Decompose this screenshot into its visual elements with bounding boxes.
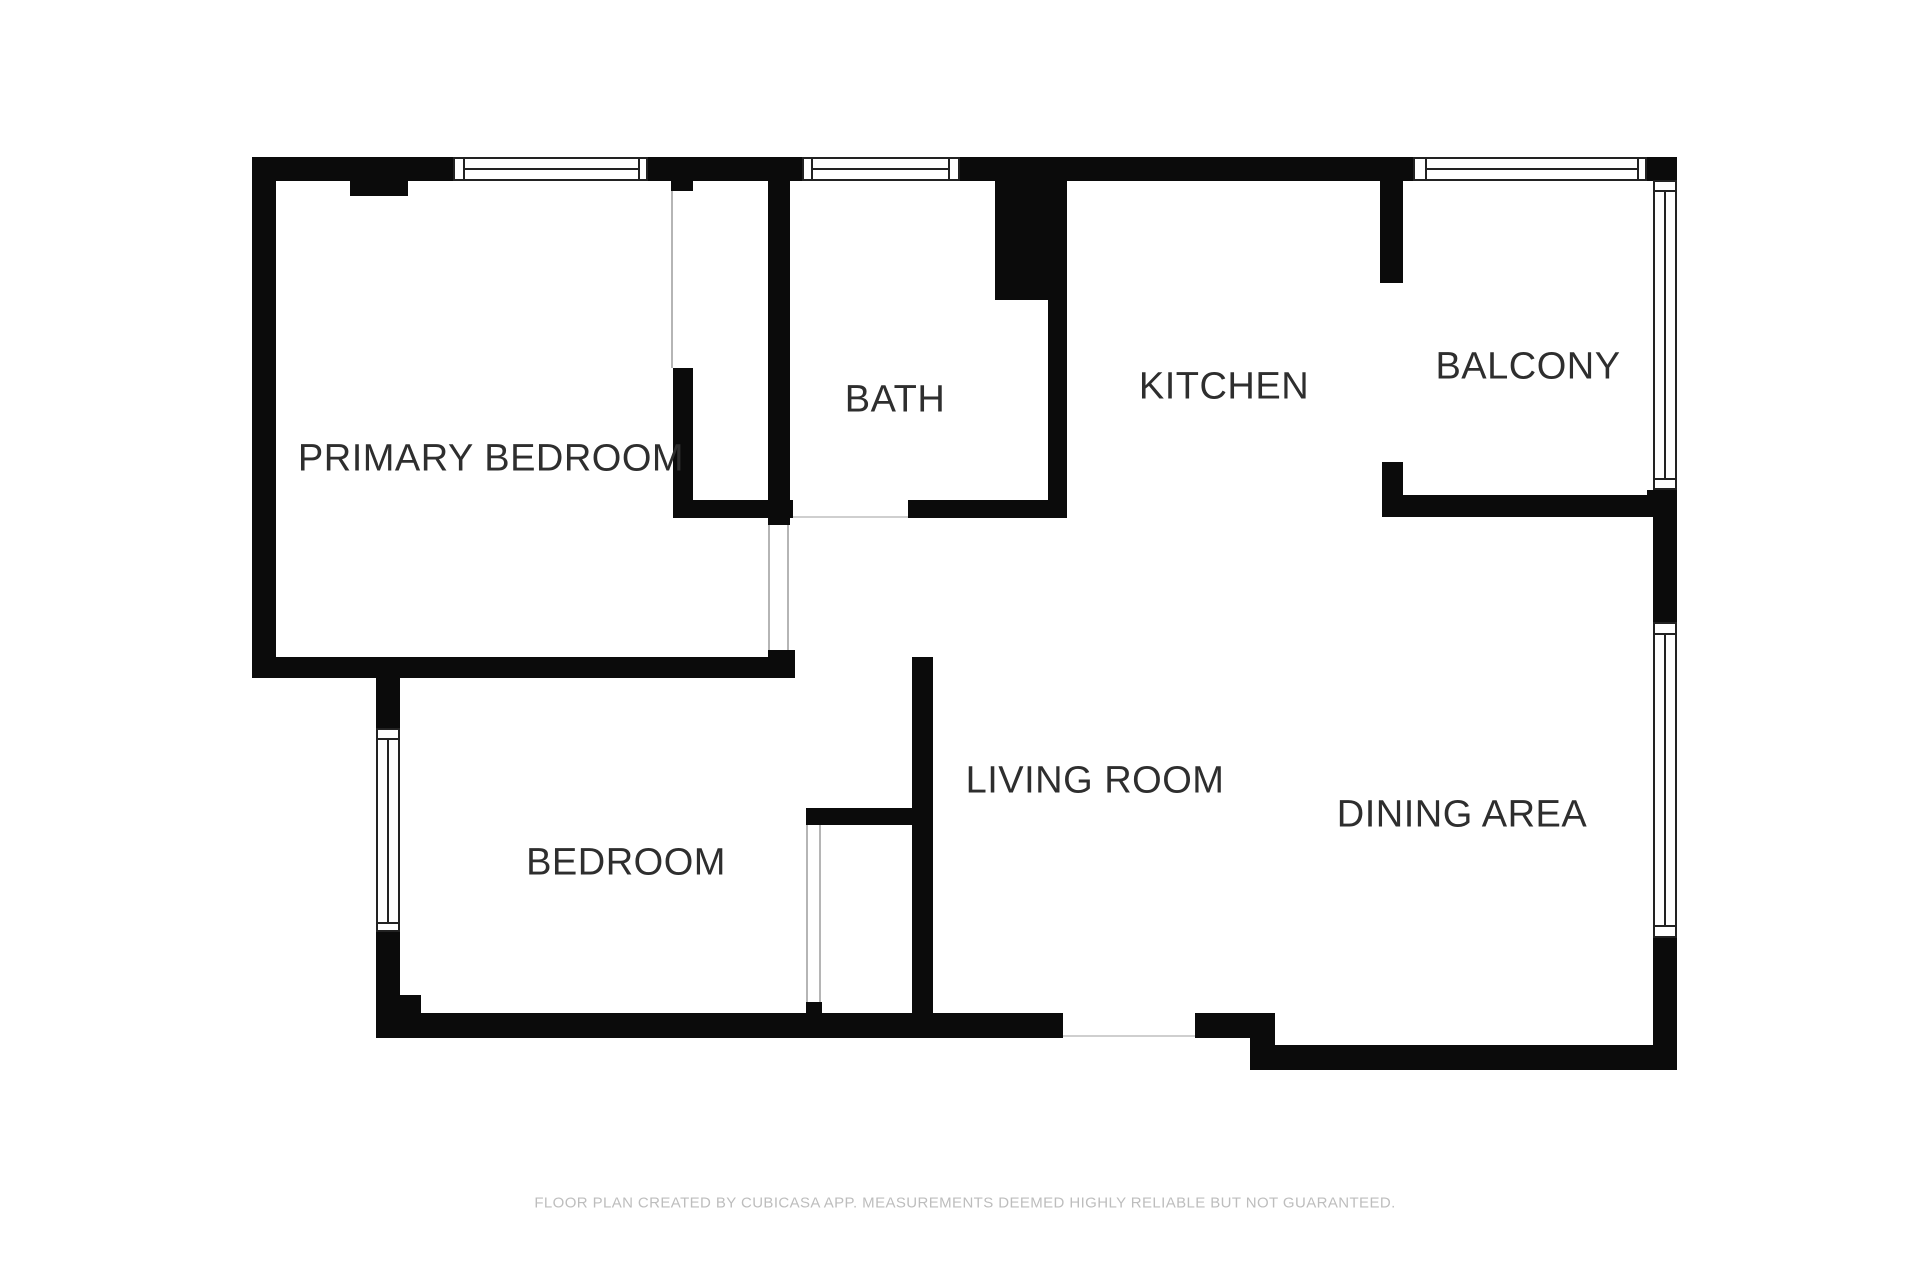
wall-living-room-left <box>912 657 933 1038</box>
window-bath-top <box>813 157 948 181</box>
wall-bottom-dining <box>1250 1045 1677 1070</box>
window-frame <box>1653 925 1677 938</box>
wall-bottom-bedroom-living <box>376 1013 1063 1038</box>
floor-plan: PRIMARY BEDROOM BEDROOM BATH KITCHEN BAL… <box>0 0 1920 1280</box>
window-frame <box>376 728 400 740</box>
window-frame <box>1653 180 1677 192</box>
wall-bath-bottom <box>908 500 1067 518</box>
window-frame <box>1637 157 1647 181</box>
room-label-living-room: LIVING ROOM <box>966 760 1225 803</box>
wall-left-exterior <box>252 157 276 678</box>
window-frame <box>1653 478 1677 490</box>
wall-top-primary-bedroom <box>252 157 453 181</box>
wall-top-kitchen <box>960 157 1380 181</box>
window-frame <box>1653 622 1677 635</box>
room-label-bath: BATH <box>845 379 946 422</box>
window-balcony-right <box>1653 192 1677 478</box>
wall-bedroom-closet-top <box>806 808 912 825</box>
wall-bedroom-door-stub <box>806 1002 822 1013</box>
entry-door-threshold <box>1063 1035 1195 1037</box>
window-frame <box>1413 157 1427 181</box>
wall-balcony-left-lower <box>1382 462 1403 517</box>
room-label-primary-bedroom: PRIMARY BEDROOM <box>298 438 684 481</box>
window-frame <box>376 922 400 932</box>
bath-door-threshold <box>793 516 908 518</box>
closet-opening-line <box>671 191 673 368</box>
window-bedroom-left <box>376 740 400 922</box>
wall-closet-stub <box>671 181 693 191</box>
window-frame <box>948 157 960 181</box>
room-label-kitchen: KITCHEN <box>1139 366 1309 409</box>
primary-bedroom-door-line <box>768 525 770 650</box>
wall-kitchen-right-upper <box>1380 157 1403 283</box>
window-frame <box>453 157 465 181</box>
window-frame <box>802 157 813 181</box>
window-balcony-top <box>1427 157 1637 181</box>
wall-bedroom-corner-step <box>400 995 421 1013</box>
wall-top-right-corner <box>1647 157 1677 181</box>
wall-right-upper <box>1653 490 1677 622</box>
room-label-dining-area: DINING AREA <box>1337 794 1587 837</box>
wall-bedroom-left-upper <box>376 657 400 728</box>
bedroom-door-line <box>819 825 821 1002</box>
footer-disclaimer: FLOOR PLAN CREATED BY CUBICASA APP. MEAS… <box>534 1195 1395 1212</box>
window-frame <box>638 157 648 181</box>
window-dining-right <box>1653 635 1677 925</box>
wall-bath-right <box>1048 157 1067 518</box>
primary-bedroom-door-line <box>787 525 789 650</box>
wall-top-closet <box>648 157 802 181</box>
wall-primary-bedroom-bottom <box>252 657 793 678</box>
wall-bath-left <box>768 181 790 525</box>
wall-balcony-bottom <box>1403 495 1653 517</box>
room-label-balcony: BALCONY <box>1435 346 1620 389</box>
wall-bath-shower-block <box>995 181 1048 300</box>
room-label-bedroom: BEDROOM <box>526 842 726 885</box>
wall-stub-top-bump <box>350 181 408 196</box>
wall-hall-door-bottom-block <box>768 650 795 678</box>
bedroom-door-line <box>806 825 808 1002</box>
window-primary-bedroom-top <box>465 157 638 181</box>
